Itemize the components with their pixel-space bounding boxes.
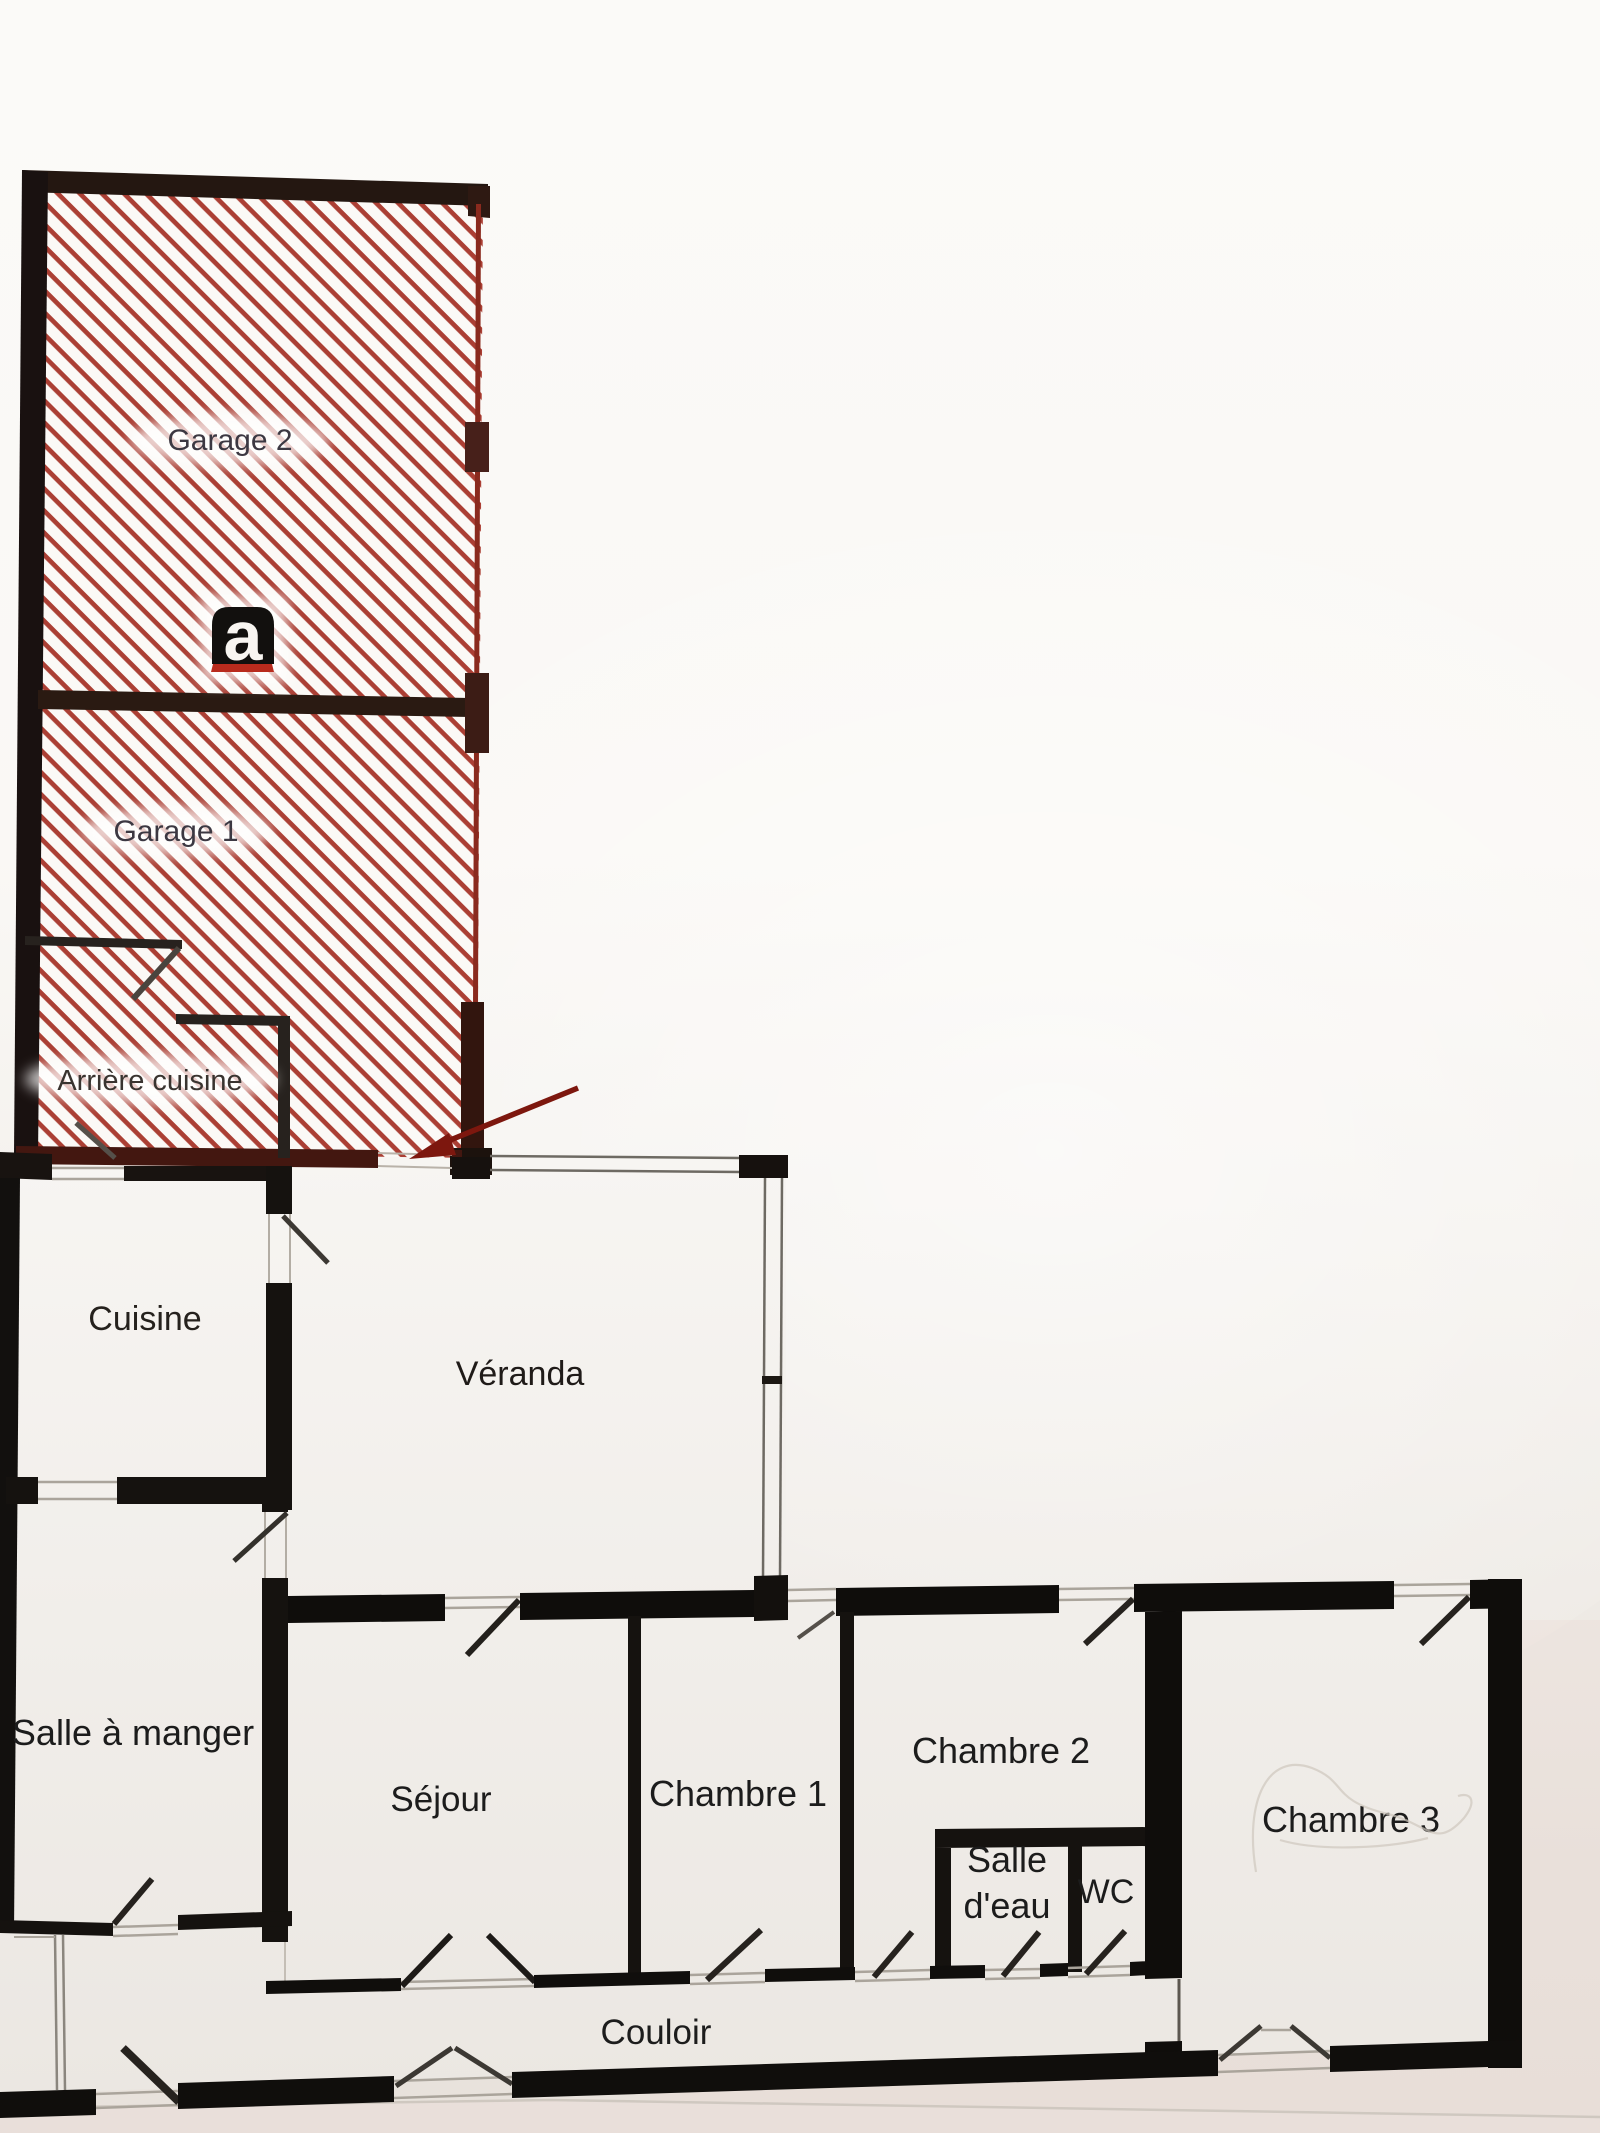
svg-text:Cuisine: Cuisine: [88, 1300, 201, 1338]
svg-text:Couloir: Couloir: [601, 2013, 712, 2052]
svg-text:Séjour: Séjour: [390, 1780, 492, 1819]
svg-text:Garage 2: Garage 2: [167, 424, 292, 457]
svg-text:Arrière cuisine: Arrière cuisine: [57, 1065, 242, 1097]
svg-text:a: a: [224, 597, 264, 675]
svg-text:Garage 1: Garage 1: [113, 815, 238, 848]
svg-text:Salle: Salle: [967, 1839, 1047, 1880]
svg-text:Chambre 3: Chambre 3: [1262, 1799, 1440, 1840]
svg-text:WC: WC: [1078, 1873, 1135, 1911]
svg-text:Chambre 2: Chambre 2: [912, 1730, 1090, 1771]
svg-text:d'eau: d'eau: [964, 1885, 1051, 1926]
svg-text:Chambre 1: Chambre 1: [649, 1773, 827, 1814]
svg-text:Véranda: Véranda: [456, 1355, 585, 1393]
svg-text:Salle à manger: Salle à manger: [12, 1712, 254, 1753]
